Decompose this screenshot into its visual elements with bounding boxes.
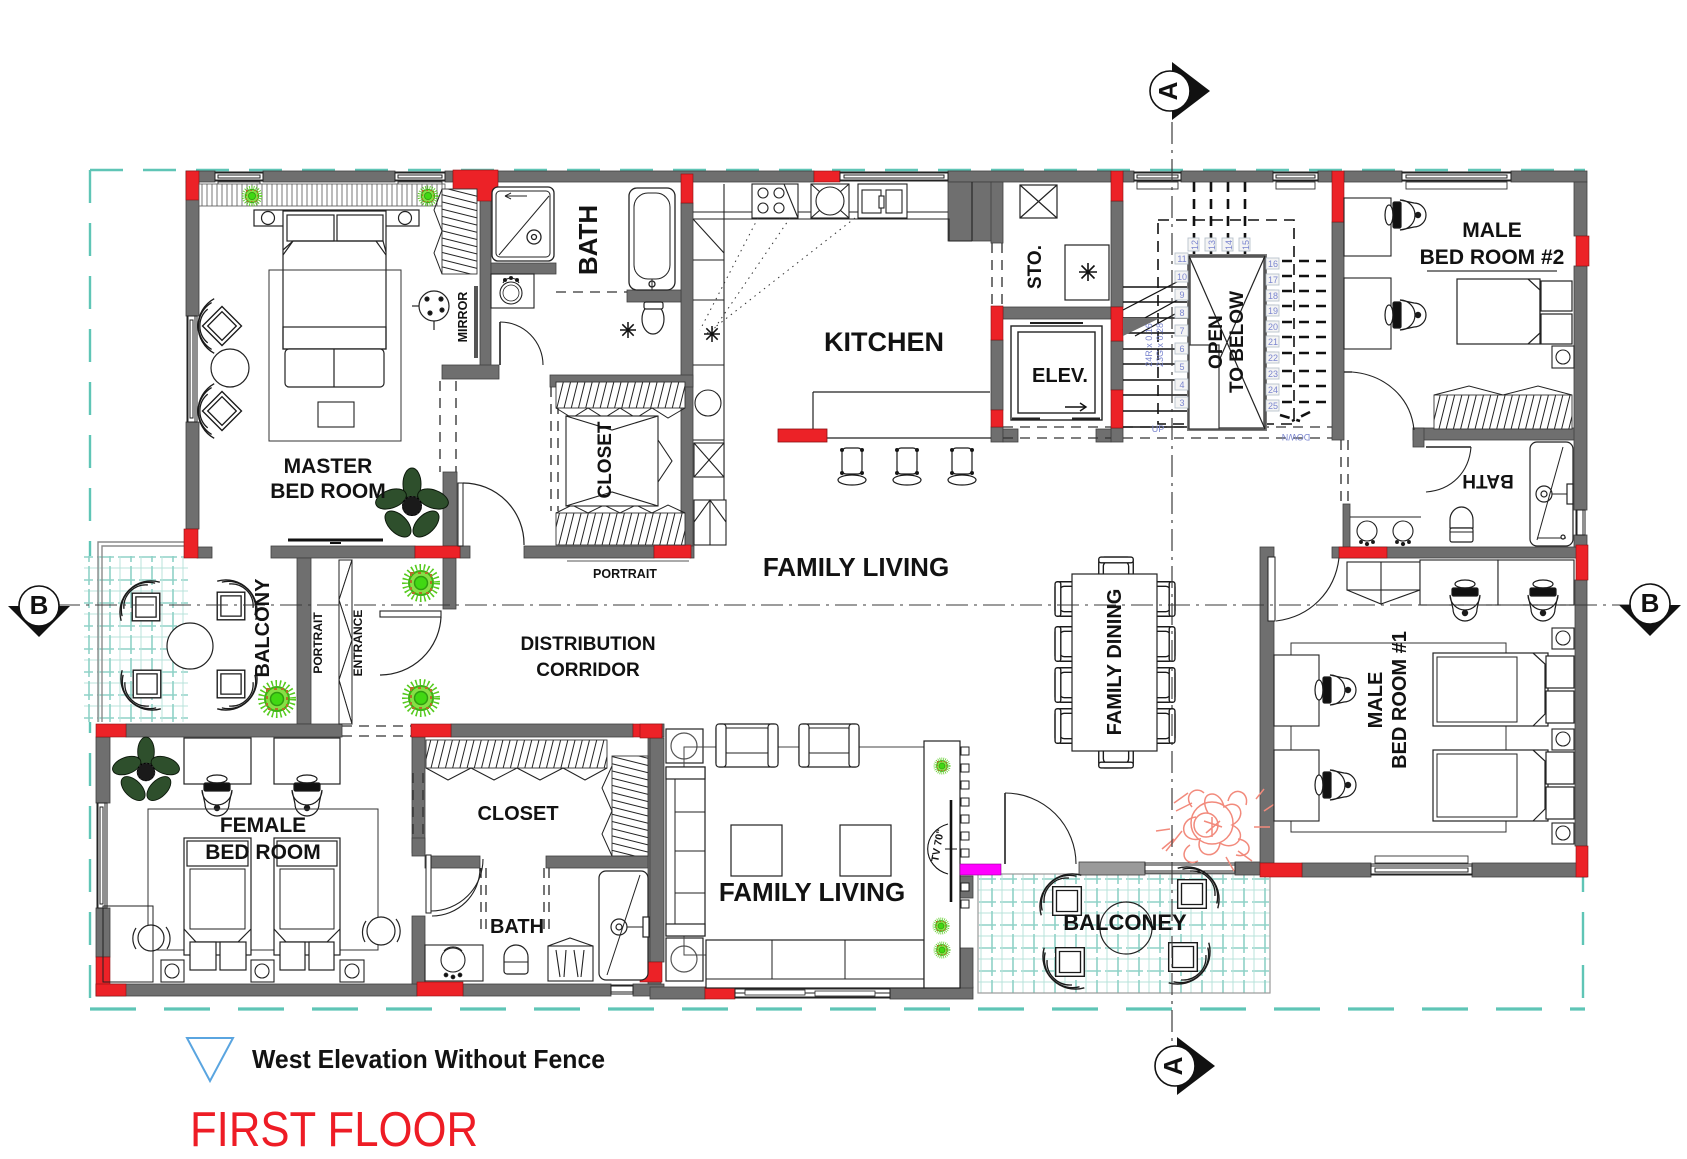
svg-text:UP: UP [1152,424,1165,434]
svg-text:FAMILY DINING: FAMILY DINING [1104,589,1126,736]
svg-text:PORTRAIT: PORTRAIT [593,567,657,581]
svg-text:B: B [30,590,49,620]
svg-text:11: 11 [1177,254,1186,264]
svg-text:15: 15 [1241,240,1251,250]
svg-text:4: 4 [1179,380,1184,390]
svg-text:5: 5 [1179,362,1184,372]
svg-text:West Elevation Without Fence: West Elevation Without Fence [252,1044,605,1074]
svg-text:24R x 0.16: 24R x 0.16 [1144,323,1154,367]
svg-text:CORRIDOR: CORRIDOR [536,660,640,681]
svg-text:KITCHEN: KITCHEN [824,327,944,357]
svg-text:BATH: BATH [573,205,603,275]
svg-text:7: 7 [1179,326,1184,336]
svg-text:14: 14 [1224,240,1234,250]
svg-text:13: 13 [1207,240,1217,250]
svg-text:FAMILY LIVING: FAMILY LIVING [763,552,949,582]
svg-text:DISTRIBUTION: DISTRIBUTION [520,634,655,655]
svg-text:BATH: BATH [490,916,544,938]
svg-text:MALE: MALE [1462,219,1522,242]
svg-text:24: 24 [1268,385,1278,395]
svg-text:FEMALE: FEMALE [220,814,306,837]
svg-text:BALCONY: BALCONY [252,578,274,678]
svg-text:TO BELOW: TO BELOW [1227,291,1248,393]
svg-text:MIRROR: MIRROR [456,292,470,343]
svg-text:MALE: MALE [1365,672,1387,729]
svg-text:BED ROOM #2: BED ROOM #2 [1420,246,1565,269]
svg-text:BED ROOM: BED ROOM [270,480,386,503]
svg-text:CLOSET: CLOSET [595,421,616,498]
svg-text:PORTRAIT: PORTRAIT [311,612,325,674]
svg-text:17: 17 [1268,275,1278,285]
svg-text:ENTRANCE: ENTRANCE [351,610,365,677]
svg-text:CLOSET: CLOSET [477,803,558,825]
svg-text:FAMILY LIVING: FAMILY LIVING [719,877,905,907]
svg-text:3: 3 [1179,398,1184,408]
svg-text:19: 19 [1268,306,1278,316]
svg-text:A: A [1158,1056,1188,1075]
svg-text:8: 8 [1179,308,1184,318]
svg-text:18: 18 [1268,291,1278,301]
svg-text:A: A [1153,81,1183,100]
svg-text:16: 16 [1268,259,1278,269]
svg-text:ELEV.: ELEV. [1032,365,1088,387]
svg-text:B: B [1641,588,1660,618]
svg-text:25: 25 [1268,401,1278,411]
svg-text:10: 10 [1177,272,1187,282]
svg-text:BATH: BATH [1462,470,1513,491]
svg-text:DOWN: DOWN [1282,432,1311,442]
svg-text:23G x 0.28: 23G x 0.28 [1155,323,1165,367]
svg-text:OPEN: OPEN [1206,315,1227,369]
svg-text:6: 6 [1179,344,1184,354]
svg-text:21: 21 [1268,337,1278,347]
svg-text:BED ROOM: BED ROOM [205,841,321,864]
svg-text:22: 22 [1268,353,1278,363]
svg-text:BED ROOM #1: BED ROOM #1 [1389,631,1411,769]
svg-text:MASTER: MASTER [284,455,373,478]
svg-text:20: 20 [1268,322,1278,332]
svg-text:12: 12 [1190,240,1200,250]
svg-text:23: 23 [1268,369,1278,379]
svg-text:STO.: STO. [1025,245,1046,289]
svg-text:BALCONEY: BALCONEY [1063,910,1187,935]
svg-text:9: 9 [1179,290,1184,300]
svg-text:FIRST FLOOR: FIRST FLOOR [190,1103,478,1157]
